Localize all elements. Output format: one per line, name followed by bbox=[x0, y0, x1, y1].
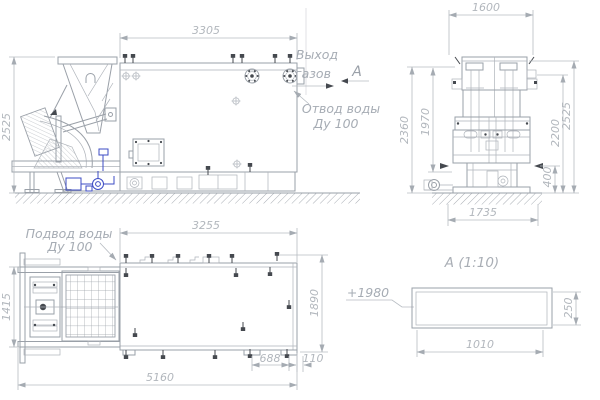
pump-motor bbox=[66, 178, 81, 190]
dim-front-left-inner: 1970 bbox=[419, 68, 452, 172]
dim-plan-overall-length-text: 5160 bbox=[146, 371, 174, 384]
dim-front-foundation: 1735 bbox=[448, 204, 538, 226]
valve-fitting bbox=[99, 149, 108, 155]
water-inlet-leader bbox=[100, 243, 116, 260]
dim-plan-tipper-width: 1415 bbox=[0, 267, 20, 347]
dim-side-height-text: 2525 bbox=[0, 113, 13, 141]
tipping-skip bbox=[21, 85, 116, 168]
base-frame bbox=[120, 163, 295, 191]
ground-line bbox=[15, 193, 360, 204]
dim-plan-body-width: 1890 bbox=[280, 255, 328, 352]
dim-plan-body-width-text: 1890 bbox=[308, 289, 321, 317]
dim-front-width-text: 1600 bbox=[472, 1, 500, 14]
grate bbox=[62, 267, 119, 345]
dim-front-left-outer-text: 2360 bbox=[398, 116, 411, 144]
hopper bbox=[58, 57, 117, 133]
keyhole-slot bbox=[86, 74, 95, 84]
dim-front-right-base-text: 400 bbox=[541, 167, 554, 188]
elevation-leader bbox=[346, 300, 414, 307]
dim-front-left-inner-text: 1970 bbox=[419, 108, 432, 136]
front-pedestal bbox=[424, 163, 530, 193]
dim-plan-edge-offset-text: 110 bbox=[303, 352, 324, 365]
channel-profile bbox=[412, 288, 552, 328]
section-view: А (1:10) +1980 1010 250 bbox=[346, 255, 581, 357]
plan-view: Подвод воды Ду 100 bbox=[0, 219, 328, 390]
position-mark bbox=[122, 72, 131, 81]
label-water-inlet-2: Ду 100 bbox=[47, 239, 93, 254]
dim-section-width-text: 1010 bbox=[466, 338, 494, 351]
label-gas-outlet-2: газов bbox=[295, 66, 331, 81]
dim-side-width: 3305 bbox=[120, 24, 297, 60]
front-body bbox=[440, 90, 543, 169]
dim-plan-support-spacing-text: 688 bbox=[260, 352, 281, 365]
front-ground-line bbox=[432, 193, 542, 205]
callout-labels: Выход газов А Отвод воды Ду 100 bbox=[292, 47, 380, 131]
dim-plan-body-length-text: 3255 bbox=[192, 219, 220, 232]
front-view: 1600 2360 1970 400 2200 2525 bbox=[398, 1, 579, 226]
dim-section-height-text: 250 bbox=[562, 298, 575, 319]
clamp-hooks bbox=[140, 257, 199, 263]
technical-drawing-sheet: 3305 2525 Выход газов А Отвод воды Ду 10… bbox=[0, 0, 600, 400]
label-gas-outlet-1: Выход bbox=[296, 47, 338, 62]
dim-section-width: 1010 bbox=[417, 330, 543, 357]
gas-flange-symbol bbox=[245, 69, 259, 83]
dim-front-right-outer-text: 2525 bbox=[560, 102, 573, 130]
section-title: А (1:10) bbox=[444, 255, 499, 271]
label-section-letter: А bbox=[351, 64, 362, 80]
label-water-outlet-2: Ду 100 bbox=[313, 116, 359, 131]
flow-arrow-left-icon bbox=[440, 163, 449, 169]
front-bunker bbox=[452, 57, 537, 117]
dim-side-width-text: 3305 bbox=[192, 24, 220, 37]
plan-body bbox=[120, 252, 297, 359]
dim-plan-tipper-width-text: 1415 bbox=[0, 293, 13, 321]
inspection-hatch bbox=[129, 139, 164, 166]
elevation-mark: +1980 bbox=[347, 285, 389, 300]
dim-front-width: 1600 bbox=[449, 1, 533, 55]
dim-front-right-base: 400 bbox=[540, 166, 560, 193]
dim-front-foundation-text: 1735 bbox=[469, 206, 497, 219]
label-water-outlet-1: Отвод воды bbox=[302, 101, 380, 116]
front-columns bbox=[466, 63, 518, 152]
drawing-canvas: 3305 2525 Выход газов А Отвод воды Ду 10… bbox=[0, 0, 600, 400]
dim-section-height: 250 bbox=[553, 292, 581, 325]
bolt-symbol bbox=[123, 54, 127, 63]
